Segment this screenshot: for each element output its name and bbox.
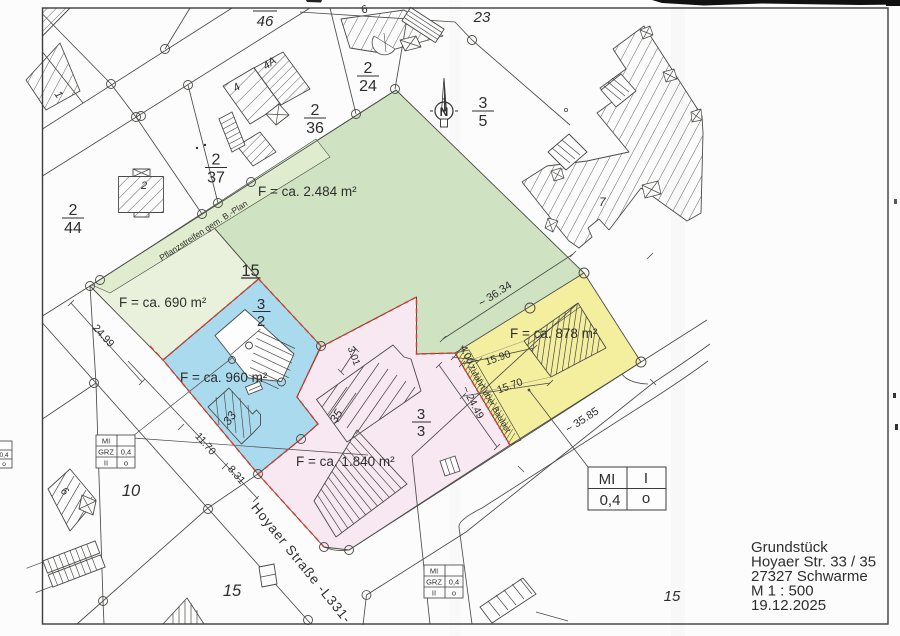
svg-text:2: 2	[364, 60, 373, 77]
svg-text:3: 3	[417, 423, 425, 440]
svg-text:II: II	[432, 589, 436, 598]
svg-text:2: 2	[140, 180, 147, 192]
svg-text:o: o	[124, 459, 128, 468]
svg-text:o: o	[642, 490, 650, 507]
svg-text:F = ca. 960 m²: F = ca. 960 m²	[180, 370, 268, 385]
svg-text:F = ca. 690 m²: F = ca. 690 m²	[119, 295, 207, 310]
svg-text:F = ca. 1.840 m²: F = ca. 1.840 m²	[296, 454, 395, 469]
svg-text:37: 37	[207, 170, 225, 187]
svg-text:46: 46	[257, 13, 274, 30]
svg-text:2: 2	[257, 313, 265, 330]
svg-text:0,4: 0,4	[600, 492, 621, 509]
svg-text:o: o	[452, 589, 456, 598]
svg-text:15: 15	[664, 588, 681, 605]
svg-text:I: I	[644, 470, 648, 487]
svg-text:36: 36	[306, 120, 324, 137]
svg-text:II: II	[104, 459, 108, 468]
svg-text:3: 3	[257, 296, 265, 313]
svg-text:24: 24	[359, 78, 377, 95]
svg-text:MI: MI	[599, 471, 616, 488]
svg-text:15: 15	[223, 582, 242, 600]
svg-text:10: 10	[122, 482, 141, 500]
svg-text:0,4: 0,4	[0, 452, 9, 459]
svg-text:3: 3	[417, 406, 425, 423]
svg-text:o: o	[2, 461, 6, 468]
svg-text:3: 3	[479, 95, 488, 112]
svg-text:GRZ: GRZ	[98, 448, 114, 457]
svg-text:44: 44	[64, 220, 82, 237]
svg-text:GRZ: GRZ	[426, 578, 442, 587]
svg-text:23: 23	[473, 9, 491, 26]
svg-text:F = ca. 878 m²: F = ca. 878 m²	[510, 326, 598, 341]
svg-text:15: 15	[241, 262, 259, 280]
svg-text:2: 2	[212, 152, 221, 169]
svg-text:5: 5	[479, 113, 488, 130]
svg-text:MI: MI	[430, 567, 438, 576]
svg-text:2: 2	[69, 202, 78, 219]
svg-text:N: N	[440, 105, 449, 119]
svg-text:F = ca. 2.484 m²: F = ca. 2.484 m²	[258, 184, 357, 199]
svg-text:2: 2	[311, 102, 320, 119]
svg-text:0,4: 0,4	[449, 578, 459, 587]
svg-text:0,4: 0,4	[121, 448, 131, 457]
svg-text:MI: MI	[102, 437, 110, 446]
svg-text:19.12.2025: 19.12.2025	[751, 597, 826, 614]
